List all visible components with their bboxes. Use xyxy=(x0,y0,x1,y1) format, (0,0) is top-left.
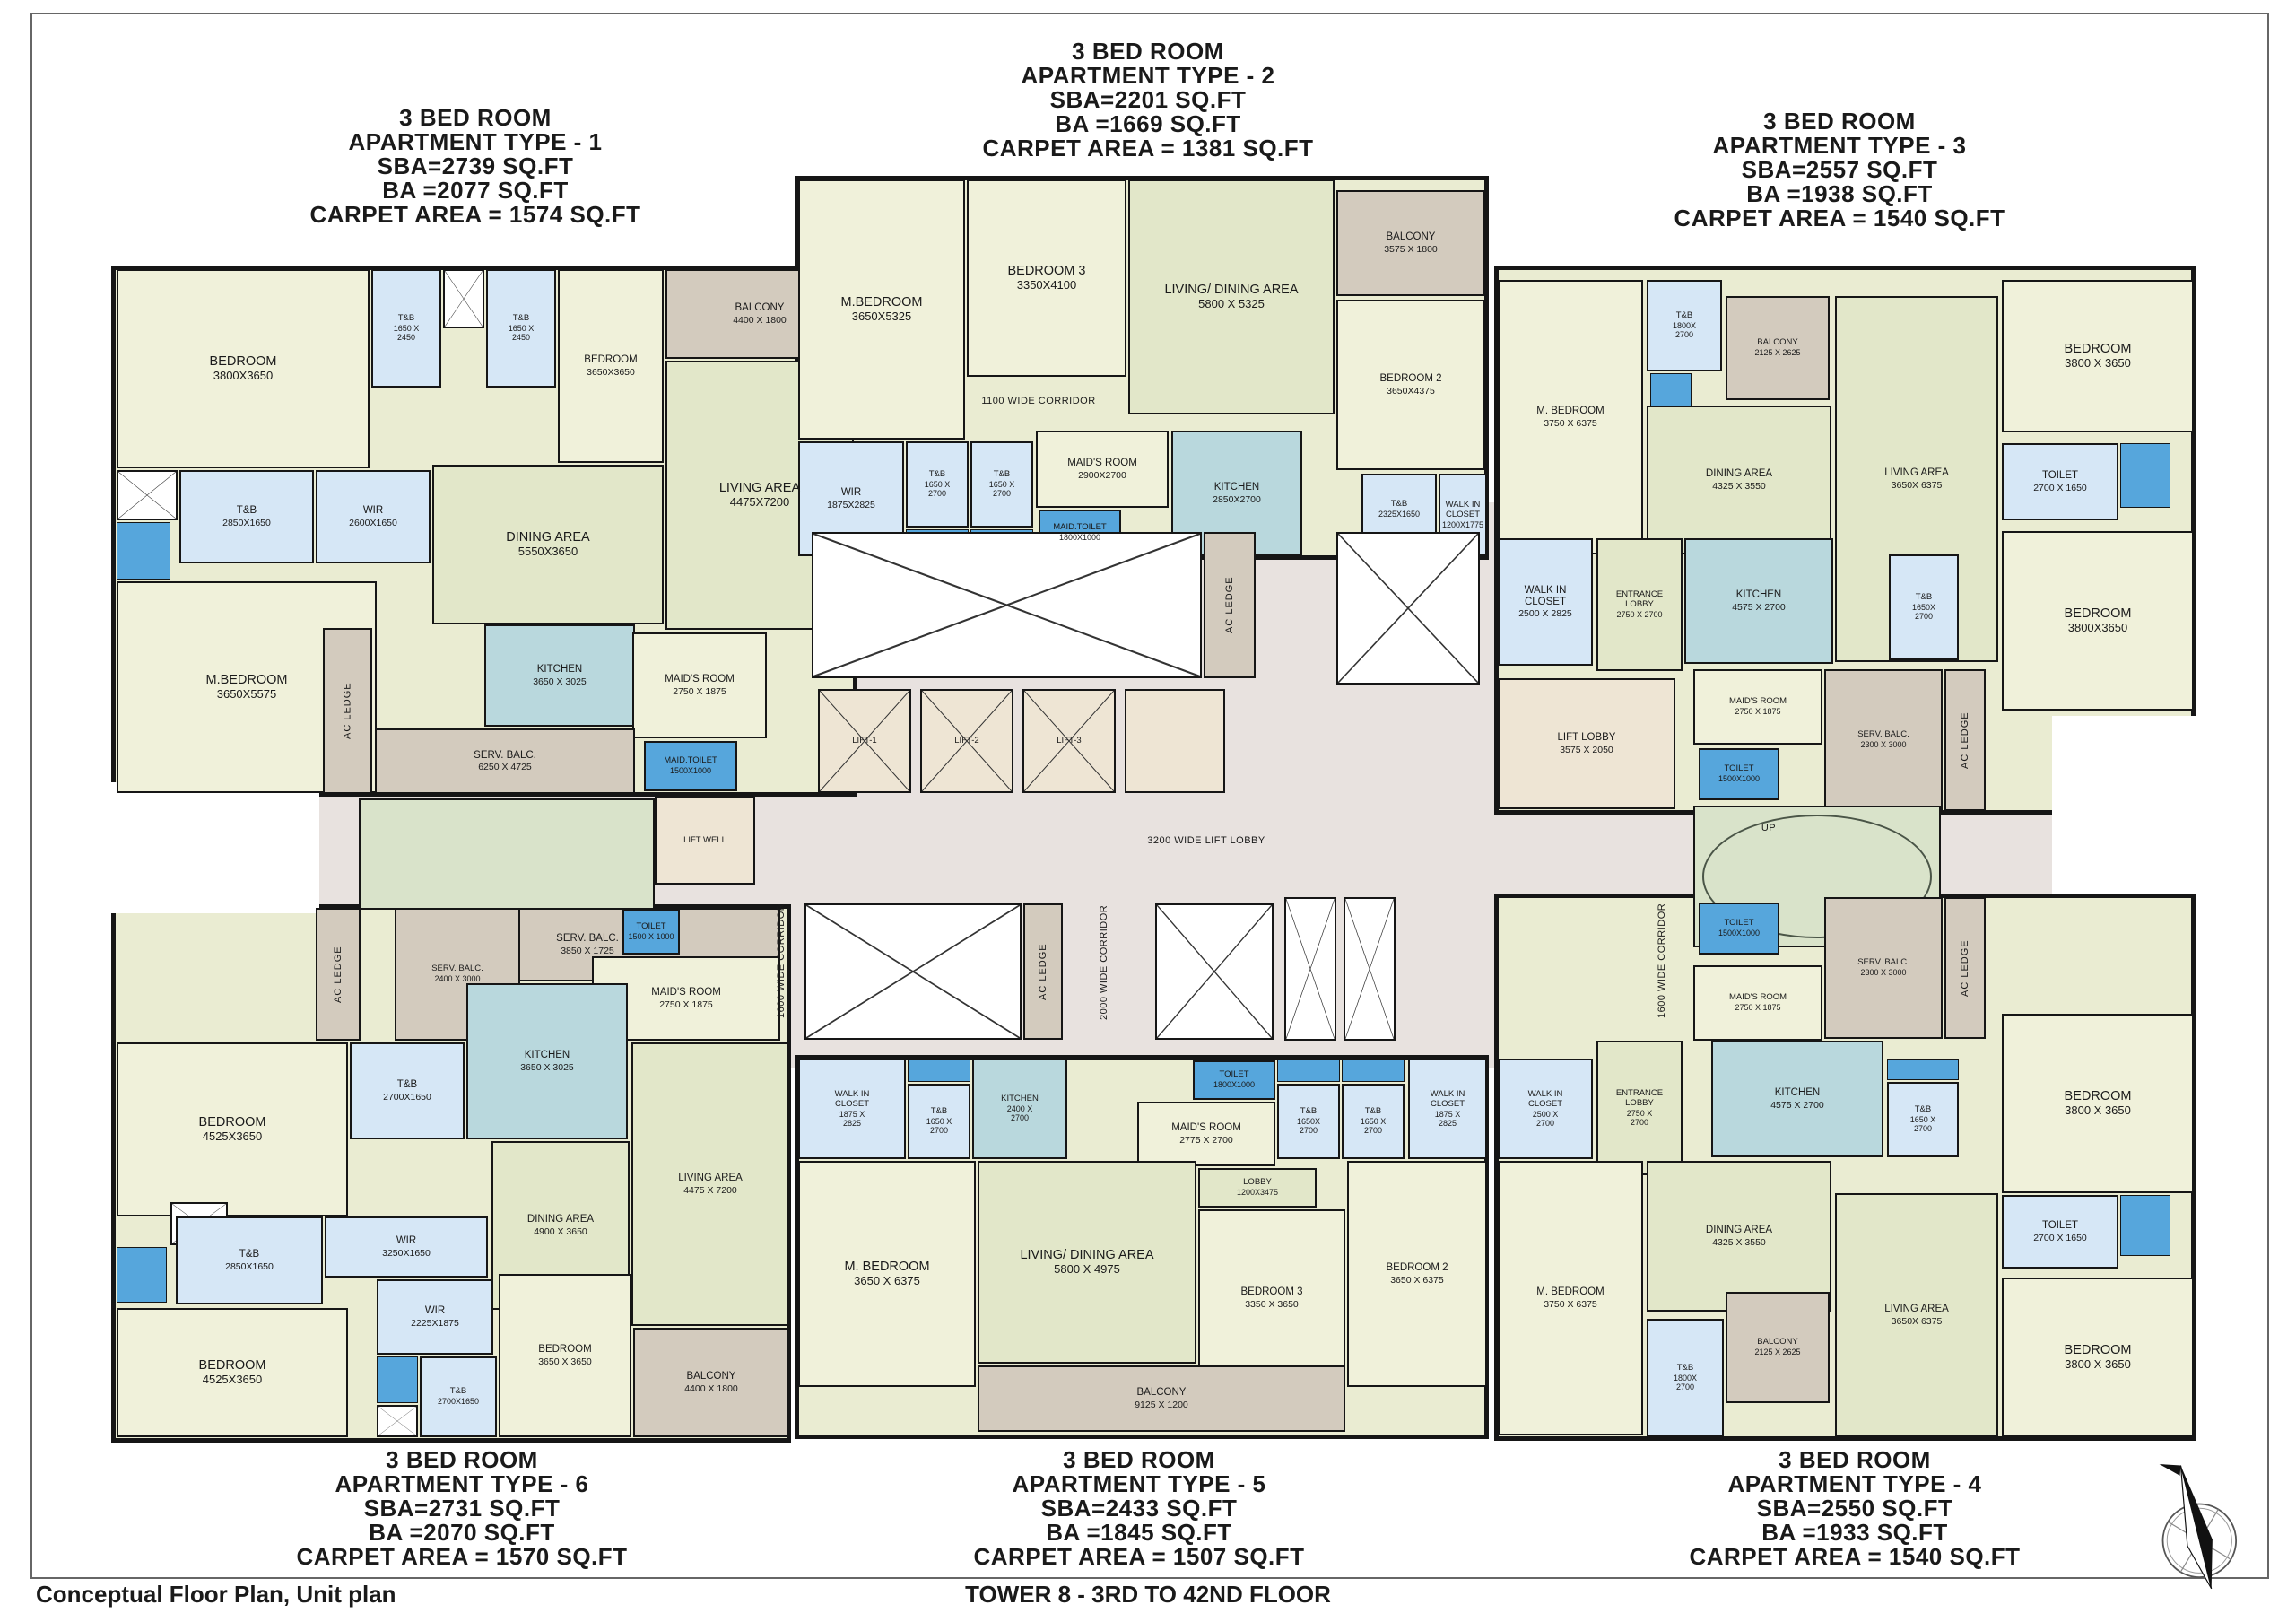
up-label: UP xyxy=(1751,822,1787,834)
room-label: T&B2325X1650 xyxy=(1378,500,1420,519)
lift-lobby-label: 3200 WIDE LIFT LOBBY xyxy=(1103,833,1309,849)
fixture xyxy=(1887,1059,1959,1080)
room-label: T&B1800X 2700 xyxy=(1674,1364,1697,1392)
room-toilet: TOILET2700 X 1650 xyxy=(2002,443,2118,520)
room-wir: WIR2600X1650 xyxy=(316,470,430,563)
room-label: SERV. BALC.6250 X 4725 xyxy=(474,750,536,772)
shaft-duct xyxy=(1344,897,1396,1041)
ac-ledge-label: AC LEDGE xyxy=(325,630,370,792)
room-label: BEDROOM3650 X 3650 xyxy=(538,1344,592,1366)
room-label: KITCHEN4575 X 2700 xyxy=(1732,589,1786,612)
room-label: T&B1650 X 2700 xyxy=(1361,1107,1387,1136)
room-mbedroom: M. BEDROOM3650 X 6375 xyxy=(798,1161,976,1387)
room-label: LIVING AREA3650X 6375 xyxy=(1884,467,1949,490)
room-balcony: BALCONY2125 X 2625 xyxy=(1726,1292,1830,1403)
shaft xyxy=(377,1405,418,1437)
room-label: WIR2600X1650 xyxy=(349,505,397,528)
compass-icon xyxy=(2144,1455,2251,1599)
room-label: M. BEDROOM3750 X 6375 xyxy=(1536,405,1604,428)
fixture xyxy=(908,1059,970,1082)
room-label: ENTRANCE LOBBY2750 X 2700 xyxy=(1616,1089,1663,1128)
fixture xyxy=(1277,1059,1340,1082)
room-label: T&B1650 X 2700 xyxy=(989,470,1015,499)
room-label: WIR1875X2825 xyxy=(827,487,875,510)
room-label: BEDROOM3800X3650 xyxy=(210,354,277,383)
apartment-type-2-title: 3 BED ROOM APARTMENT TYPE - 2 SBA=2201 S… xyxy=(915,39,1381,161)
plan-notch-right xyxy=(2052,716,2199,894)
room-kitchen: KITCHEN4575 X 2700 xyxy=(1684,538,1833,664)
room-label: WIR3250X1650 xyxy=(382,1235,430,1258)
room-label: DINING AREA4900 X 3650 xyxy=(527,1214,594,1236)
cross-shaft-icon xyxy=(1338,534,1478,683)
room-label: LIVING AREA3650X 6375 xyxy=(1884,1304,1949,1326)
shaft-duct xyxy=(1336,532,1480,685)
room-bedroom: BEDROOM4525X3650 xyxy=(117,1042,348,1216)
cross-shaft-icon xyxy=(118,472,176,519)
tower-floor-label: TOWER 8 - 3RD TO 42ND FLOOR xyxy=(0,1581,2296,1609)
fixture xyxy=(1342,1059,1405,1082)
room-bedroom: BEDROOM3800X3650 xyxy=(2002,531,2194,711)
room-label: MAID.TOILET1800X1000 xyxy=(1053,523,1106,542)
room-dining: DINING AREA5550X3650 xyxy=(432,465,664,624)
room-label: BEDROOM 33350 X 3650 xyxy=(1240,1286,1302,1309)
room-balcony: BALCONY3575 X 1800 xyxy=(1336,190,1485,296)
room-label: TOILET1800X1000 xyxy=(1213,1070,1255,1089)
room-label: T&B1650 X 2700 xyxy=(926,1107,952,1136)
room-bedroom2: BEDROOM 23650X4375 xyxy=(1336,300,1485,470)
room-mbedroom: M. BEDROOM3750 X 6375 xyxy=(1498,280,1643,554)
room-tnb: T&B2700X1650 xyxy=(350,1042,465,1139)
ac-ledge-label: AC LEDGE xyxy=(317,910,359,1039)
room-label: WALK IN CLOSET2500 X 2700 xyxy=(1528,1090,1563,1129)
room-maid: MAID'S ROOM2750 X 1875 xyxy=(1693,669,1822,745)
room-kitchen: KITCHEN3650 X 3025 xyxy=(484,624,635,727)
room-label: BEDROOM 33350X4100 xyxy=(1007,264,1085,292)
room-label: WALK IN CLOSET2500 X 2825 xyxy=(1518,585,1572,620)
room-bedroom: BEDROOM3650 X 3650 xyxy=(499,1274,631,1437)
room-label: LIVING/ DINING AREA5800 X 5325 xyxy=(1164,283,1298,311)
room-label: WALK IN CLOSET1875 X 2825 xyxy=(835,1090,870,1129)
room-label: T&B2700X1650 xyxy=(383,1079,431,1102)
corridor-label: 1100 WIDE CORRIDOR xyxy=(958,393,1119,409)
room-maid: MAID'S ROOM2900X2700 xyxy=(1036,431,1169,508)
room-label: SERV. BALC.2300 X 3000 xyxy=(1857,730,1909,749)
room-label: KITCHEN3650 X 3025 xyxy=(520,1050,574,1072)
room-bedroom: BEDROOM3650X3650 xyxy=(558,269,664,463)
room-tnb: T&B1650 X 2700 xyxy=(906,441,969,528)
room-label: ENTRANCE LOBBY2750 X 2700 xyxy=(1616,590,1663,619)
room-label: SERV. BALC.2400 X 3000 xyxy=(431,964,483,983)
room-toilet: TOILET1500X1000 xyxy=(1699,748,1779,800)
room-label: LIVING AREA4475X7200 xyxy=(719,481,800,510)
room-label: T&B1800X 2700 xyxy=(1673,311,1696,340)
room-label: BEDROOM3650X3650 xyxy=(584,354,637,377)
room-label: WALK IN CLOSET1200X1775 xyxy=(1442,501,1483,529)
room-serv-balc: SERV. BALC.6250 X 4725 xyxy=(375,728,635,794)
room-label: LIFT-2 xyxy=(954,737,978,746)
room-living-dining: LIVING/ DINING AREA5800 X 5325 xyxy=(1128,179,1335,414)
apartment-type-6-title: 3 BED ROOM APARTMENT TYPE - 6 SBA=2731 S… xyxy=(229,1448,695,1569)
room-bedroom3: BEDROOM 33350 X 3650 xyxy=(1198,1209,1345,1387)
room-bedroom2: BEDROOM 23650 X 6375 xyxy=(1347,1161,1487,1387)
ac-ledge: AC LEDGE xyxy=(1944,669,1986,811)
apartment-type-1-title: 3 BED ROOM APARTMENT TYPE - 1 SBA=2739 S… xyxy=(242,106,709,227)
room-label: M.BEDROOM3650X5325 xyxy=(840,295,922,324)
fixture xyxy=(1650,373,1692,407)
room-label: TOILET2700 X 1650 xyxy=(2033,1220,2087,1243)
room-label: DINING AREA4325 X 3550 xyxy=(1706,1225,1772,1247)
fixture xyxy=(2120,443,2170,508)
room-label: KITCHEN2850X2700 xyxy=(1213,482,1261,504)
room-tnb: T&B1650 X 2700 xyxy=(970,441,1033,528)
room-entrance-lobby: ENTRANCE LOBBY2750 X 2700 xyxy=(1596,538,1683,671)
floor-plan-sheet: BEDROOM3800X3650T&B1650 X 2450T&B1650 X … xyxy=(0,0,2296,1622)
room-walkin: WALK IN CLOSET1875 X 2825 xyxy=(1408,1059,1487,1159)
room-lift-lobby: LIFT LOBBY3575 X 2050 xyxy=(1498,678,1675,809)
room-label: BEDROOM4525X3650 xyxy=(199,1115,266,1144)
room-tnb: T&B2850X1650 xyxy=(176,1216,323,1304)
room-bedroom: BEDROOM3800 X 3650 xyxy=(2002,1278,2194,1437)
room-walkin: WALK IN CLOSET2500 X 2825 xyxy=(1498,538,1593,666)
room-serv-balc: SERV. BALC.2300 X 3000 xyxy=(1824,669,1943,811)
room-label: T&B1650 X 2700 xyxy=(925,470,951,499)
shaft-duct xyxy=(1284,897,1336,1041)
room-mbedroom: M. BEDROOM3750 X 6375 xyxy=(1498,1161,1643,1435)
room-maid: MAID'S ROOM2750 X 1875 xyxy=(1693,965,1822,1041)
room-label: WIR2225X1875 xyxy=(411,1305,459,1328)
shaft-duct xyxy=(1155,903,1274,1040)
room-label: T&B1650 X 2450 xyxy=(509,314,535,343)
room-walkin: WALK IN CLOSET1875 X 2825 xyxy=(798,1059,906,1159)
ac-ledge: AC LEDGE xyxy=(1023,903,1063,1040)
room-tnb: T&B1650 X 2450 xyxy=(486,269,556,388)
room-label: BALCONY2125 X 2625 xyxy=(1754,1338,1800,1356)
apartment-type-3-title: 3 BED ROOM APARTMENT TYPE - 3 SBA=2557 S… xyxy=(1606,109,2073,231)
room-balcony: BALCONY4400 X 1800 xyxy=(633,1328,789,1437)
cross-shaft-icon xyxy=(1286,899,1335,1039)
room-bedroom3: BEDROOM 33350X4100 xyxy=(967,179,1126,377)
lift-1: LIFT-1 xyxy=(818,689,911,793)
room-label: SERV. BALC.3850 X 1725 xyxy=(556,933,619,955)
fixture xyxy=(377,1356,418,1403)
room-label: LIVING AREA4475 X 7200 xyxy=(678,1173,743,1195)
room-label: BALCONY4400 X 1800 xyxy=(733,302,787,325)
cross-shaft-icon xyxy=(378,1407,416,1435)
lift-3: LIFT-3 xyxy=(1022,689,1116,793)
fixture xyxy=(2120,1195,2170,1256)
room-kitchen: KITCHEN2400 X 2700 xyxy=(972,1059,1067,1159)
room-label: BEDROOM 23650X4375 xyxy=(1379,373,1441,396)
plan-notch-left xyxy=(106,782,319,913)
cross-shaft-icon xyxy=(806,905,1020,1038)
corridor-label: 1600 WIDE CORRIDOR xyxy=(1650,886,1674,1034)
staircase xyxy=(359,798,655,910)
room-label: KITCHEN3650 X 3025 xyxy=(533,664,587,686)
cross-shaft-icon xyxy=(1345,899,1394,1039)
room-label: T&B1650 X 2700 xyxy=(1910,1105,1936,1134)
room-label: TOILET1500X1000 xyxy=(1718,764,1760,783)
room-toilet: TOILET1500 X 1000 xyxy=(622,910,680,955)
room-label: T&B1650X 2700 xyxy=(1297,1107,1320,1136)
room-kitchen: KITCHEN3650 X 3025 xyxy=(466,983,628,1139)
cross-shaft-icon xyxy=(813,534,1200,676)
room-toilet: TOILET2700 X 1650 xyxy=(2002,1195,2118,1269)
room-label: BEDROOM3800 X 3650 xyxy=(2065,1343,2132,1372)
room-maid-toilet: MAID.TOILET1500X1000 xyxy=(644,741,737,791)
cross-shaft-icon xyxy=(1157,905,1272,1038)
room-tnb: T&B2700X1650 xyxy=(420,1356,497,1437)
room-tnb: T&B1800X 2700 xyxy=(1647,280,1722,371)
room-balcony: BALCONY2125 X 2625 xyxy=(1726,296,1830,400)
room-toilet: TOILET1800X1000 xyxy=(1193,1060,1275,1100)
room-tnb: T&B1800X 2700 xyxy=(1647,1319,1724,1437)
room-label: TOILET1500X1000 xyxy=(1718,919,1760,937)
room-tnb: T&B1650X 2700 xyxy=(1889,554,1959,660)
room-wir: WIR2225X1875 xyxy=(377,1279,493,1355)
shaft xyxy=(117,470,178,520)
room-mbedroom: M.BEDROOM3650X5325 xyxy=(798,179,965,440)
room-balcony: BALCONY9125 X 1200 xyxy=(978,1365,1345,1432)
room-label: BEDROOM4525X3650 xyxy=(199,1358,266,1387)
room-label: M.BEDROOM3650X5575 xyxy=(205,673,287,702)
ac-ledge-label: AC LEDGE xyxy=(1946,899,1984,1037)
room-label: M. BEDROOM3650 X 6375 xyxy=(844,1260,929,1288)
lift-well: LIFT WELL xyxy=(655,797,755,885)
room-label: SERV. BALC.2300 X 3000 xyxy=(1857,958,1909,977)
room-label: TOILET2700 X 1650 xyxy=(2033,470,2087,493)
room-tnb: T&B1650X 2700 xyxy=(1277,1084,1340,1159)
shaft-duct xyxy=(804,903,1022,1040)
fixture xyxy=(117,522,170,580)
apartment-type-5-title: 3 BED ROOM APARTMENT TYPE - 5 SBA=2433 S… xyxy=(906,1448,1372,1569)
shaft-duct xyxy=(812,532,1202,678)
room-label: DINING AREA4325 X 3550 xyxy=(1706,468,1772,491)
cross-shaft-icon xyxy=(445,271,483,327)
room-toilet: TOILET1500X1000 xyxy=(1699,903,1779,955)
room-label: LIFT-3 xyxy=(1057,737,1081,746)
room-tnb: T&B1650 X 2700 xyxy=(908,1084,970,1159)
room-label: MAID'S ROOM2775 X 2700 xyxy=(1171,1122,1241,1145)
room-label: MAID'S ROOM2750 X 1875 xyxy=(665,674,735,696)
room-label: T&B1650 X 2450 xyxy=(394,314,420,343)
room-label: DINING AREA5550X3650 xyxy=(506,530,589,559)
room-bedroom: BEDROOM4525X3650 xyxy=(117,1308,348,1437)
room-label: BEDROOM 23650 X 6375 xyxy=(1386,1262,1448,1285)
room-living-dining: LIVING/ DINING AREA5800 X 4975 xyxy=(978,1161,1196,1364)
room-label: T&B1650X 2700 xyxy=(1912,593,1935,622)
room-label: MAID'S ROOM2900X2700 xyxy=(1067,458,1137,480)
room-wir: WIR3250X1650 xyxy=(325,1216,488,1278)
room-maid: MAID'S ROOM2775 X 2700 xyxy=(1137,1102,1275,1166)
corridor-label: 2000 WIDE CORRIDOR xyxy=(1092,884,1116,1041)
room-label: MAID'S ROOM2750 X 1875 xyxy=(1729,697,1787,716)
room-label: TOILET1500 X 1000 xyxy=(628,922,674,941)
room-label: BALCONY9125 X 1200 xyxy=(1135,1387,1188,1409)
room-tnb: T&B1650 X 2450 xyxy=(371,269,441,388)
ac-ledge-label: AC LEDGE xyxy=(1205,534,1254,676)
room-label: BEDROOM3800 X 3650 xyxy=(2065,342,2132,371)
fixture xyxy=(117,1247,167,1303)
room-label: MAID'S ROOM2750 X 1875 xyxy=(1729,993,1787,1012)
ac-ledge-label: AC LEDGE xyxy=(1946,671,1984,809)
room-label: M. BEDROOM3750 X 6375 xyxy=(1536,1286,1604,1309)
room-living: LIVING AREA3650X 6375 xyxy=(1835,1193,1998,1437)
room-label: MAID.TOILET1500X1000 xyxy=(664,756,717,775)
room-bedroom: BEDROOM3800 X 3650 xyxy=(2002,280,2194,432)
ac-ledge: AC LEDGE xyxy=(323,628,372,794)
room-tnb: T&B2850X1650 xyxy=(179,470,314,563)
room-dining: DINING AREA4325 X 3550 xyxy=(1647,1161,1831,1312)
ac-ledge-label: AC LEDGE xyxy=(1025,905,1061,1038)
room-walkin: WALK IN CLOSET2500 X 2700 xyxy=(1498,1059,1593,1159)
room-serv-balc: SERV. BALC.2300 X 3000 xyxy=(1824,897,1943,1039)
ac-ledge: AC LEDGE xyxy=(316,908,361,1041)
room-maid: MAID'S ROOM2750 X 1875 xyxy=(632,632,767,738)
ac-ledge: AC LEDGE xyxy=(1944,897,1986,1039)
room-label: LIFT LOBBY3575 X 2050 xyxy=(1558,732,1616,754)
corridor-label: 1600 WIDE CORRIDOR xyxy=(770,886,793,1034)
apartment-type-4-title: 3 BED ROOM APARTMENT TYPE - 4 SBA=2550 S… xyxy=(1622,1448,2088,1569)
room-dining: DINING AREA4325 X 3550 xyxy=(1647,405,1831,554)
room-kitchen: KITCHEN4575 X 2700 xyxy=(1711,1041,1883,1157)
room-label: BEDROOM3800X3650 xyxy=(2065,606,2132,635)
room-lobby: LOBBY1200X3475 xyxy=(1198,1168,1317,1208)
room-label: LIVING/ DINING AREA5800 X 4975 xyxy=(1020,1248,1153,1277)
room-label: MAID'S ROOM2750 X 1875 xyxy=(651,987,721,1009)
room-tnb: T&B1650 X 2700 xyxy=(1342,1084,1405,1159)
room-label: T&B2850X1650 xyxy=(222,505,271,528)
ac-ledge: AC LEDGE xyxy=(1204,532,1256,678)
room-label: LOBBY1200X3475 xyxy=(1237,1178,1278,1197)
shaft xyxy=(443,269,484,328)
room-entrance-lobby: ENTRANCE LOBBY2750 X 2700 xyxy=(1596,1041,1683,1175)
room-label: LIFT-1 xyxy=(852,737,876,746)
room-bedroom: BEDROOM3800X3650 xyxy=(117,269,370,468)
room-label: BALCONY3575 X 1800 xyxy=(1384,231,1438,254)
service-nook xyxy=(1125,689,1225,793)
room-label: BALCONY4400 X 1800 xyxy=(684,1371,738,1393)
room-bedroom: BEDROOM3800 X 3650 xyxy=(2002,1014,2194,1193)
room-label: KITCHEN2400 X 2700 xyxy=(1001,1094,1039,1123)
lift-2: LIFT-2 xyxy=(920,689,1013,793)
room-living: LIVING AREA4475 X 7200 xyxy=(631,1042,789,1326)
room-label: BEDROOM3800 X 3650 xyxy=(2065,1089,2132,1118)
room-label: T&B2850X1650 xyxy=(225,1249,274,1271)
room-tnb: T&B1650 X 2700 xyxy=(1887,1082,1959,1157)
room-label: KITCHEN4575 X 2700 xyxy=(1770,1087,1824,1110)
room-label: T&B2700X1650 xyxy=(438,1387,479,1406)
room-label: BALCONY2125 X 2625 xyxy=(1754,338,1800,357)
room-label: WALK IN CLOSET1875 X 2825 xyxy=(1431,1090,1465,1129)
room-label: LIFT WELL xyxy=(683,836,726,846)
